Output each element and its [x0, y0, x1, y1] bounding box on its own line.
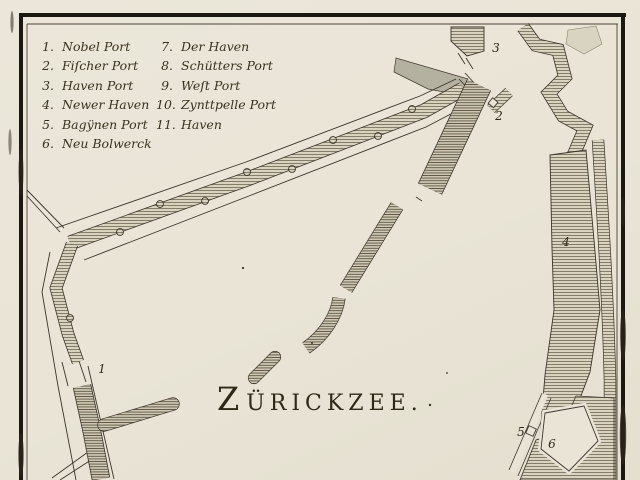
gate-number-label: 4	[562, 235, 570, 249]
gate-number-label: 3	[492, 41, 500, 55]
gate-number-label: 1	[98, 362, 106, 376]
gate-number-label: 6	[548, 437, 556, 451]
map-number-labels: 123456	[0, 0, 640, 480]
gate-number-label: 2	[495, 109, 503, 123]
engraved-map-zierikzee: 1.Nobel Port2.Fiſcher Port3.Haven Port4.…	[0, 0, 640, 480]
gate-number-label: 5	[517, 425, 525, 439]
